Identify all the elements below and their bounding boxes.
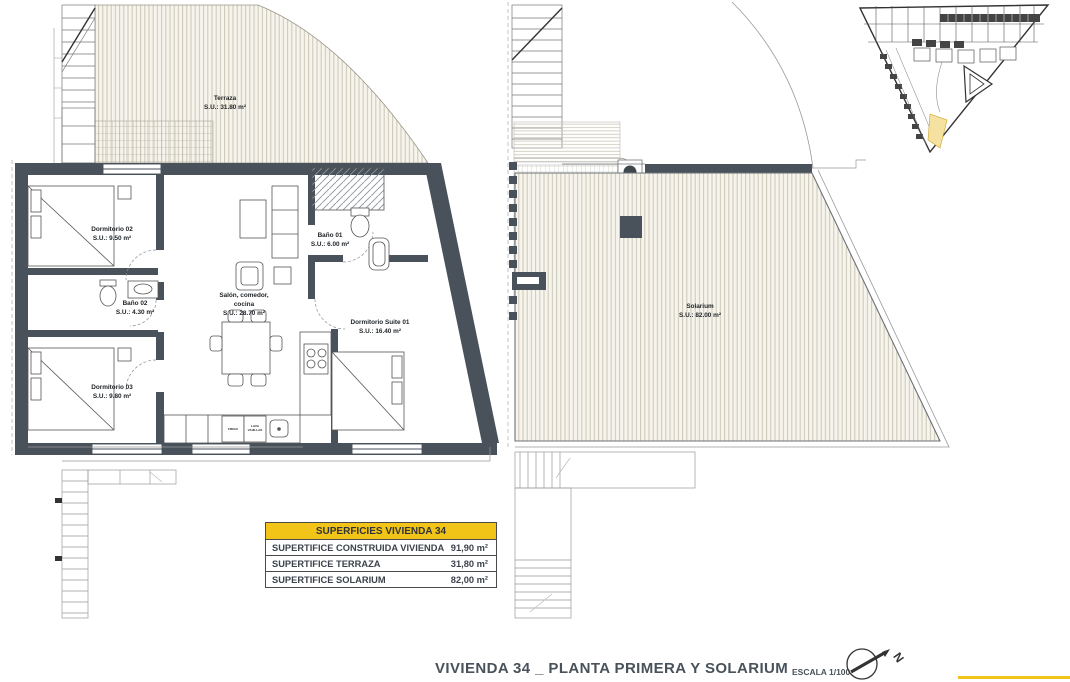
pergola-hatch: [514, 122, 620, 162]
dormitorio03-area: S.U.: 9.80 m²: [93, 393, 131, 400]
terraza-area: Terraza S.U.: 31.80 m²: [95, 5, 428, 163]
row-label: SUPERTIFICE SOLARIUM: [272, 575, 386, 585]
plot-curve: [732, 2, 813, 168]
surfaces-table-header: SUPERFICIES VIVIENDA 34: [266, 523, 496, 540]
sheet-title: VIVIENDA 34 _ PLANTA PRIMERA Y SOLARIUM: [435, 660, 788, 677]
dormitorio02-area: S.U.: 9.50 m²: [93, 235, 131, 242]
toilet-icon: [100, 280, 116, 306]
plan-sheet: Terraza S.U.: 31.80 m²: [0, 0, 1070, 682]
row-label: SUPERTIFICE TERRAZA: [272, 559, 380, 569]
suite-label: Dormitorio Suite 01: [351, 319, 410, 326]
bano01-area: S.U.: 6.00 m²: [311, 241, 349, 248]
frigo-label: FRIGO: [228, 427, 238, 431]
bano01-label: Baño 01: [318, 232, 343, 239]
toilet-icon: [351, 208, 369, 237]
furniture: [28, 168, 404, 443]
accent-strip: [958, 676, 1070, 679]
staircase-icon: [54, 5, 95, 163]
dining-table-icon: [210, 310, 282, 386]
row-label: SUPERTIFICE CONSTRUIDA VIVIENDA: [272, 543, 444, 553]
pergola-grid: [95, 121, 213, 163]
solarium-label: Solarium: [686, 303, 714, 310]
shower-icon: [312, 168, 384, 210]
surfaces-table: SUPERFICIES VIVIENDA 34 SUPERTIFICE CONS…: [265, 522, 497, 588]
armchair-icon: [236, 262, 291, 290]
row-value: 82,00 m²: [451, 575, 488, 585]
salon-label-1: Salón, comedor,: [219, 292, 269, 299]
solarium-deck: [515, 173, 940, 441]
solarium-area: S.U.: 82.00 m²: [679, 312, 721, 319]
terraza-area-label: S.U.: 31.80 m²: [204, 104, 246, 111]
compass-icon: N: [838, 640, 913, 682]
bano02-label: Baño 02: [123, 300, 148, 307]
suite-area: S.U.: 16.40 m²: [359, 328, 401, 335]
table-row: SUPERTIFICE SOLARIUM 82,00 m²: [266, 572, 496, 587]
table-row: SUPERTIFICE TERRAZA 31,80 m²: [266, 556, 496, 572]
salon-area: S.U.: 28.70 m²: [223, 310, 265, 317]
lavavajillas-label-2: VAJILLAS: [248, 428, 263, 432]
table-row: SUPERTIFICE CONSTRUIDA VIVIENDA 91,90 m²: [266, 540, 496, 556]
bano02-area: S.U.: 4.30 m²: [116, 309, 154, 316]
chimney-block: [620, 216, 642, 238]
parapet-wall: [645, 164, 812, 173]
sofa-icon: [240, 186, 298, 258]
planter-icon: [512, 272, 546, 290]
row-value: 31,80 m²: [451, 559, 488, 569]
site-plan-key: [852, 2, 1070, 160]
terraza-label: Terraza: [214, 95, 237, 102]
dormitorio03-label: Dormitorio 03: [91, 384, 133, 391]
compass-north-letter: N: [890, 650, 906, 665]
dormitorio02-label: Dormitorio 02: [91, 226, 133, 233]
sink-icon: [128, 281, 158, 298]
lower-level-outline: [515, 452, 695, 618]
bathtub-icon: [369, 238, 389, 270]
salon-label-2: cocina: [234, 301, 255, 308]
row-value: 91,90 m²: [451, 543, 488, 553]
bed-icon: [332, 352, 404, 430]
